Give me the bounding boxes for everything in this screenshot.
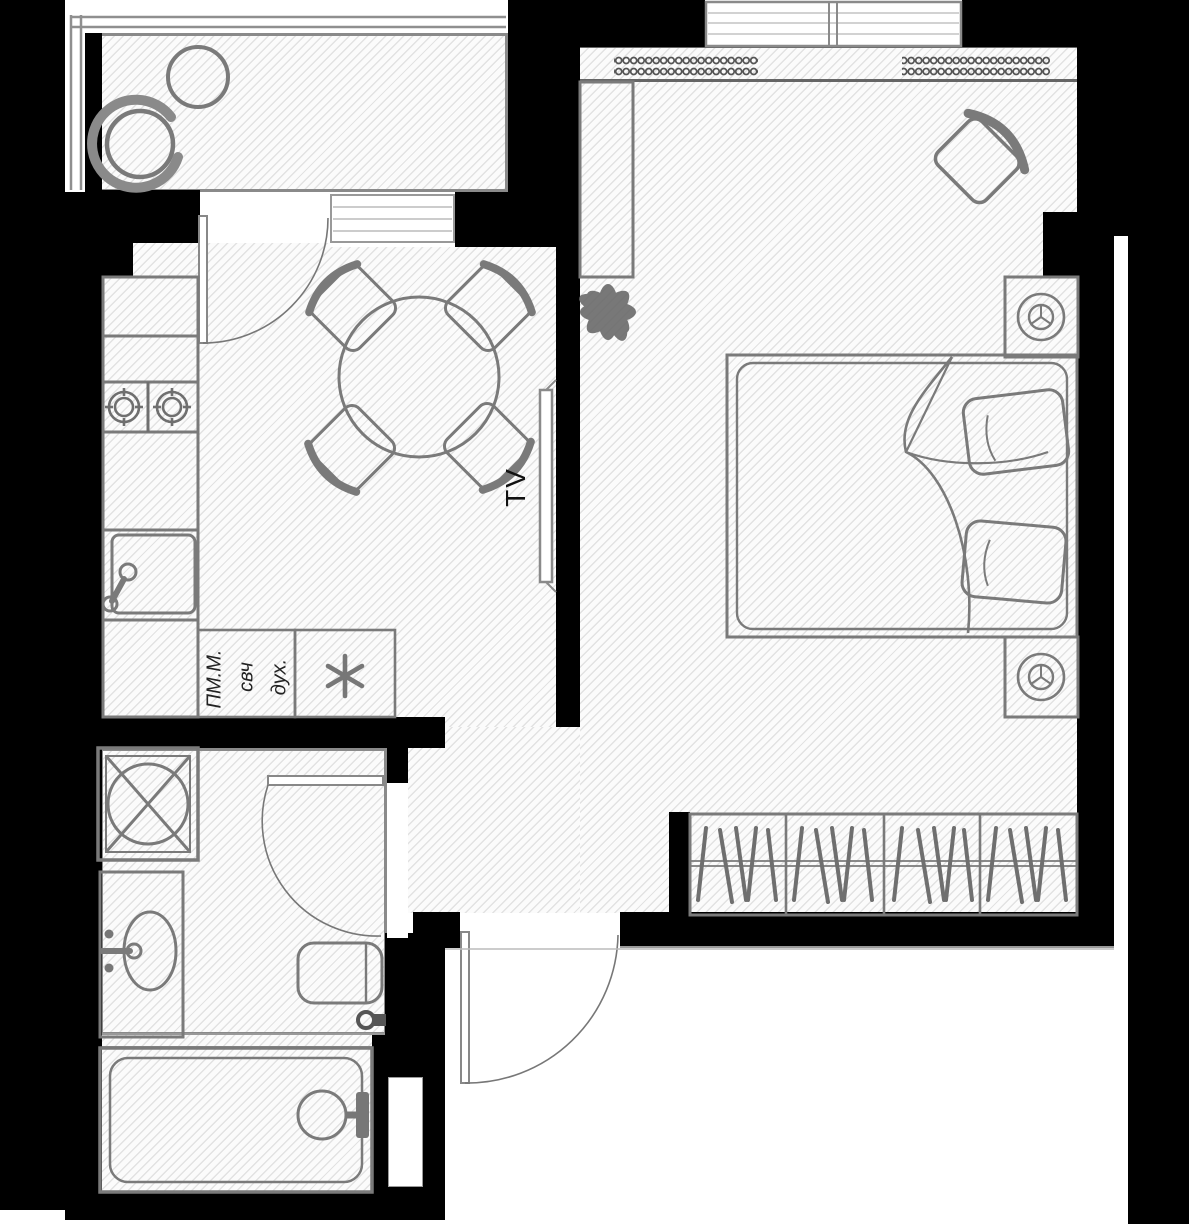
- entrance-door-swing-icon: [461, 932, 618, 1083]
- wall-wardrobe-stub: [669, 812, 690, 915]
- balcony-glazing-top-strip: [65, 0, 508, 33]
- wall-bedroom-east: [1077, 236, 1114, 947]
- wall-balcony-east-column: [508, 13, 580, 247]
- balcony-floor: [85, 33, 508, 192]
- wall-bottom: [65, 1192, 385, 1220]
- balcony-door-opening: [200, 192, 330, 243]
- wall-bathroom-north: [65, 717, 445, 748]
- appliance-label-pmm: ПМ.М.: [204, 650, 227, 709]
- bathroom-door-opening: [387, 783, 408, 938]
- wall-window-right: [455, 192, 508, 247]
- wall-balcony-south: [65, 190, 200, 243]
- appliance-label-svch: свч: [236, 662, 259, 692]
- bath-partition-strip: [100, 1033, 385, 1048]
- wall-bedroom-east-top: [1077, 47, 1128, 236]
- wall-top-band-left: [508, 0, 705, 47]
- wall-bedroom-south: [620, 912, 1114, 948]
- floor-plan: TV ПМ.М. свч дух.: [0, 0, 1189, 1224]
- bedroom-exterior-wall-band: [580, 44, 1078, 82]
- wall-partition-living-bedroom: [556, 247, 580, 727]
- balcony-glazing-left-strip: [65, 33, 85, 192]
- kitchen-window-opening: [330, 192, 455, 247]
- right-exterior-stripe: [1114, 236, 1128, 1224]
- bathroom-floor: [100, 748, 387, 1035]
- wall-bedroom-notch: [1043, 212, 1077, 277]
- wall-left-column: [0, 0, 102, 1210]
- bathtub-room-door-opening: [388, 1077, 423, 1187]
- wall-kitchen-step: [65, 243, 133, 277]
- appliance-label-dukh: дух.: [269, 659, 292, 695]
- bathtub-room-floor: [100, 1048, 372, 1192]
- tv-label: TV: [500, 467, 532, 507]
- wall-far-right-column: [1128, 0, 1189, 1224]
- kitchen-living-floor: [102, 243, 556, 727]
- bedroom-window-opening: [705, 0, 962, 47]
- bedroom-floor: [580, 80, 1077, 913]
